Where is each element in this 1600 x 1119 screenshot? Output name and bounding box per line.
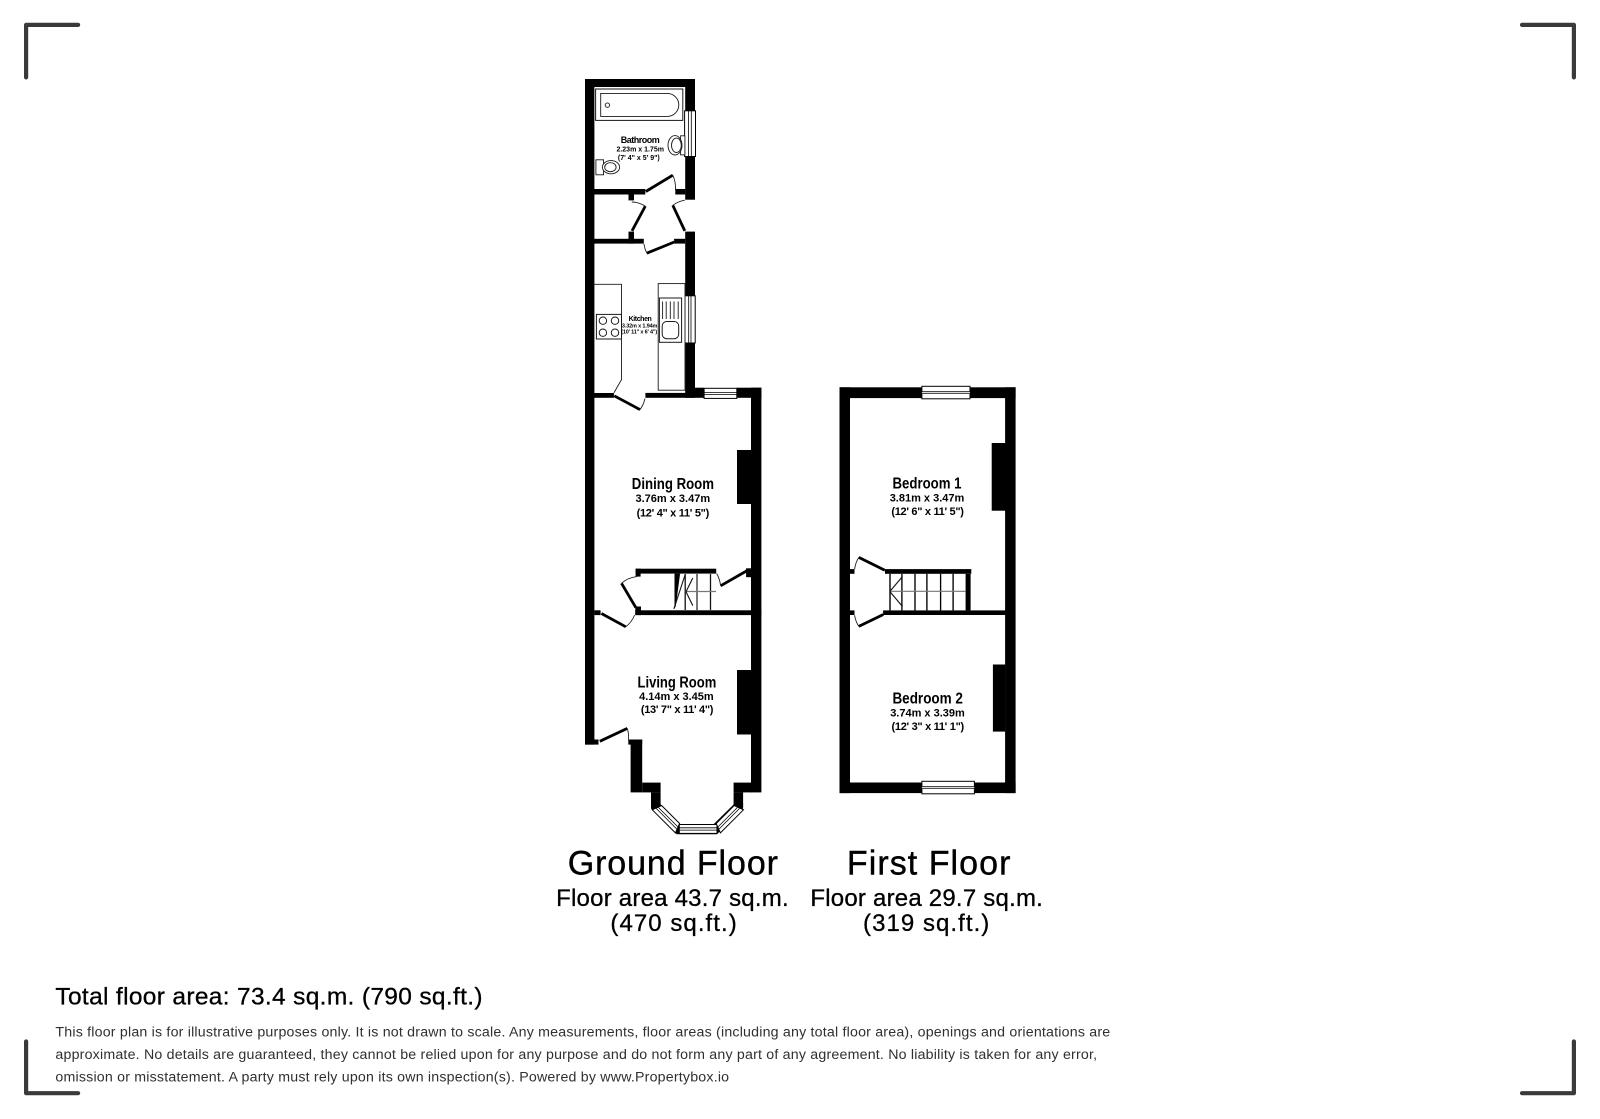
svg-text:(470 sq.ft.): (470 sq.ft.) — [610, 910, 737, 937]
svg-text:(10' 11" x 6' 4"): (10' 11" x 6' 4") — [621, 329, 657, 335]
svg-text:Bedroom 1: Bedroom 1 — [893, 476, 962, 493]
svg-text:3.74m x 3.39m: 3.74m x 3.39m — [890, 707, 965, 719]
svg-text:(12' 6" x 11' 5"): (12' 6" x 11' 5") — [891, 506, 964, 518]
svg-text:(7' 4" x 5' 9"): (7' 4" x 5' 9") — [618, 155, 660, 162]
svg-text:omission or misstatement. A pa: omission or misstatement. A party must r… — [55, 1069, 729, 1085]
svg-text:3.76m x 3.47m: 3.76m x 3.47m — [635, 493, 710, 505]
svg-text:(12' 4" x 11' 5"): (12' 4" x 11' 5") — [637, 508, 710, 520]
svg-text:Bedroom 2: Bedroom 2 — [892, 691, 963, 708]
svg-text:Floor area 29.7 sq.m.: Floor area 29.7 sq.m. — [810, 885, 1043, 912]
svg-text:(13' 7" x 11' 4"): (13' 7" x 11' 4") — [641, 704, 714, 716]
svg-text:(319 sq.ft.): (319 sq.ft.) — [863, 910, 990, 937]
svg-text:Ground Floor: Ground Floor — [568, 844, 779, 882]
svg-text:Total floor area: 73.4 sq.m. (: Total floor area: 73.4 sq.m. (790 sq.ft.… — [55, 983, 483, 1010]
svg-text:2.23m x 1.75m: 2.23m x 1.75m — [616, 146, 663, 153]
svg-text:(12' 3" x 11' 1"): (12' 3" x 11' 1") — [892, 721, 965, 733]
svg-text:Bathroom: Bathroom — [621, 135, 660, 145]
svg-text:approximate. No details are gu: approximate. No details are guaranteed, … — [55, 1047, 1097, 1063]
svg-text:Kitchen: Kitchen — [629, 316, 652, 323]
svg-text:Floor area 43.7 sq.m.: Floor area 43.7 sq.m. — [556, 885, 789, 912]
svg-text:Dining Room: Dining Room — [632, 476, 714, 493]
svg-text:This floor plan is for illustr: This floor plan is for illustrative purp… — [55, 1025, 1110, 1041]
svg-text:3.81m x 3.47m: 3.81m x 3.47m — [890, 492, 965, 504]
svg-text:First Floor: First Floor — [847, 844, 1012, 882]
svg-text:Living Room: Living Room — [638, 674, 717, 691]
svg-text:4.14m x 3.45m: 4.14m x 3.45m — [639, 691, 714, 703]
